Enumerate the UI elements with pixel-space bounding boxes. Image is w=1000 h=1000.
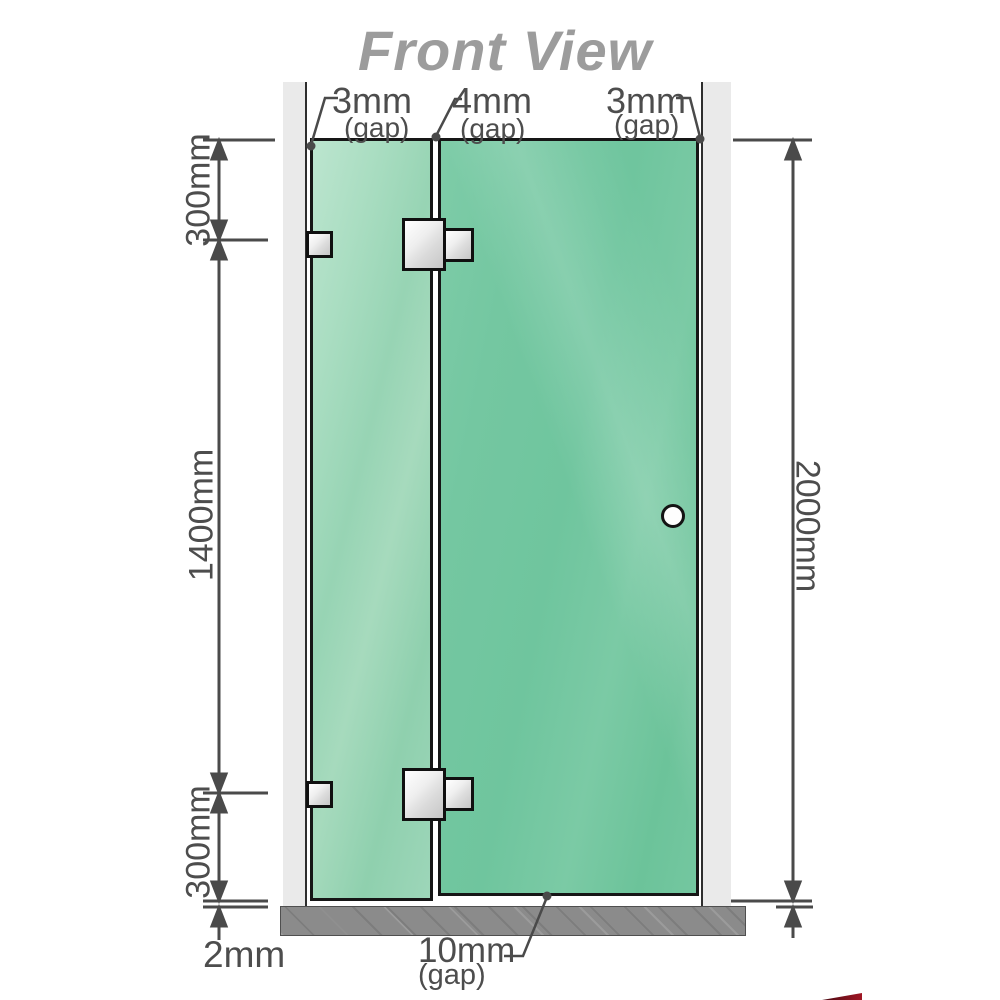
dimension-label-left-top: 300mm bbox=[180, 133, 219, 246]
page-title: Front View bbox=[358, 18, 658, 83]
dimension-label-left-middle: 1400mm bbox=[183, 449, 222, 581]
corner-logo-icon bbox=[822, 993, 862, 1000]
gap-label-right-wall-suffix: (gap) bbox=[614, 109, 679, 141]
glass-hinge-top-clamp-icon bbox=[443, 228, 474, 262]
glass-hinge-bottom-clamp-icon bbox=[443, 777, 474, 811]
gap-label-left-wall-suffix: (gap) bbox=[344, 112, 409, 144]
front-view-diagram: Front View bbox=[0, 0, 1000, 1000]
wall-bracket-bottom-icon bbox=[306, 781, 333, 808]
glass-hinge-top-icon bbox=[402, 218, 446, 271]
dimension-label-base-thickness: 2mm bbox=[203, 934, 285, 976]
door-glass-panel bbox=[438, 138, 699, 896]
gap-label-floor-suffix: (gap) bbox=[418, 959, 486, 992]
dimension-label-right-total: 2000mm bbox=[788, 460, 827, 592]
right-wall bbox=[701, 82, 731, 906]
wall-bracket-top-icon bbox=[306, 231, 333, 258]
glass-hinge-bottom-icon bbox=[402, 768, 446, 821]
gap-label-between-panels-suffix: (gap) bbox=[460, 113, 525, 145]
door-knob-icon bbox=[661, 504, 685, 528]
dimension-label-left-bottom: 300mm bbox=[180, 785, 219, 898]
left-wall bbox=[283, 82, 307, 906]
